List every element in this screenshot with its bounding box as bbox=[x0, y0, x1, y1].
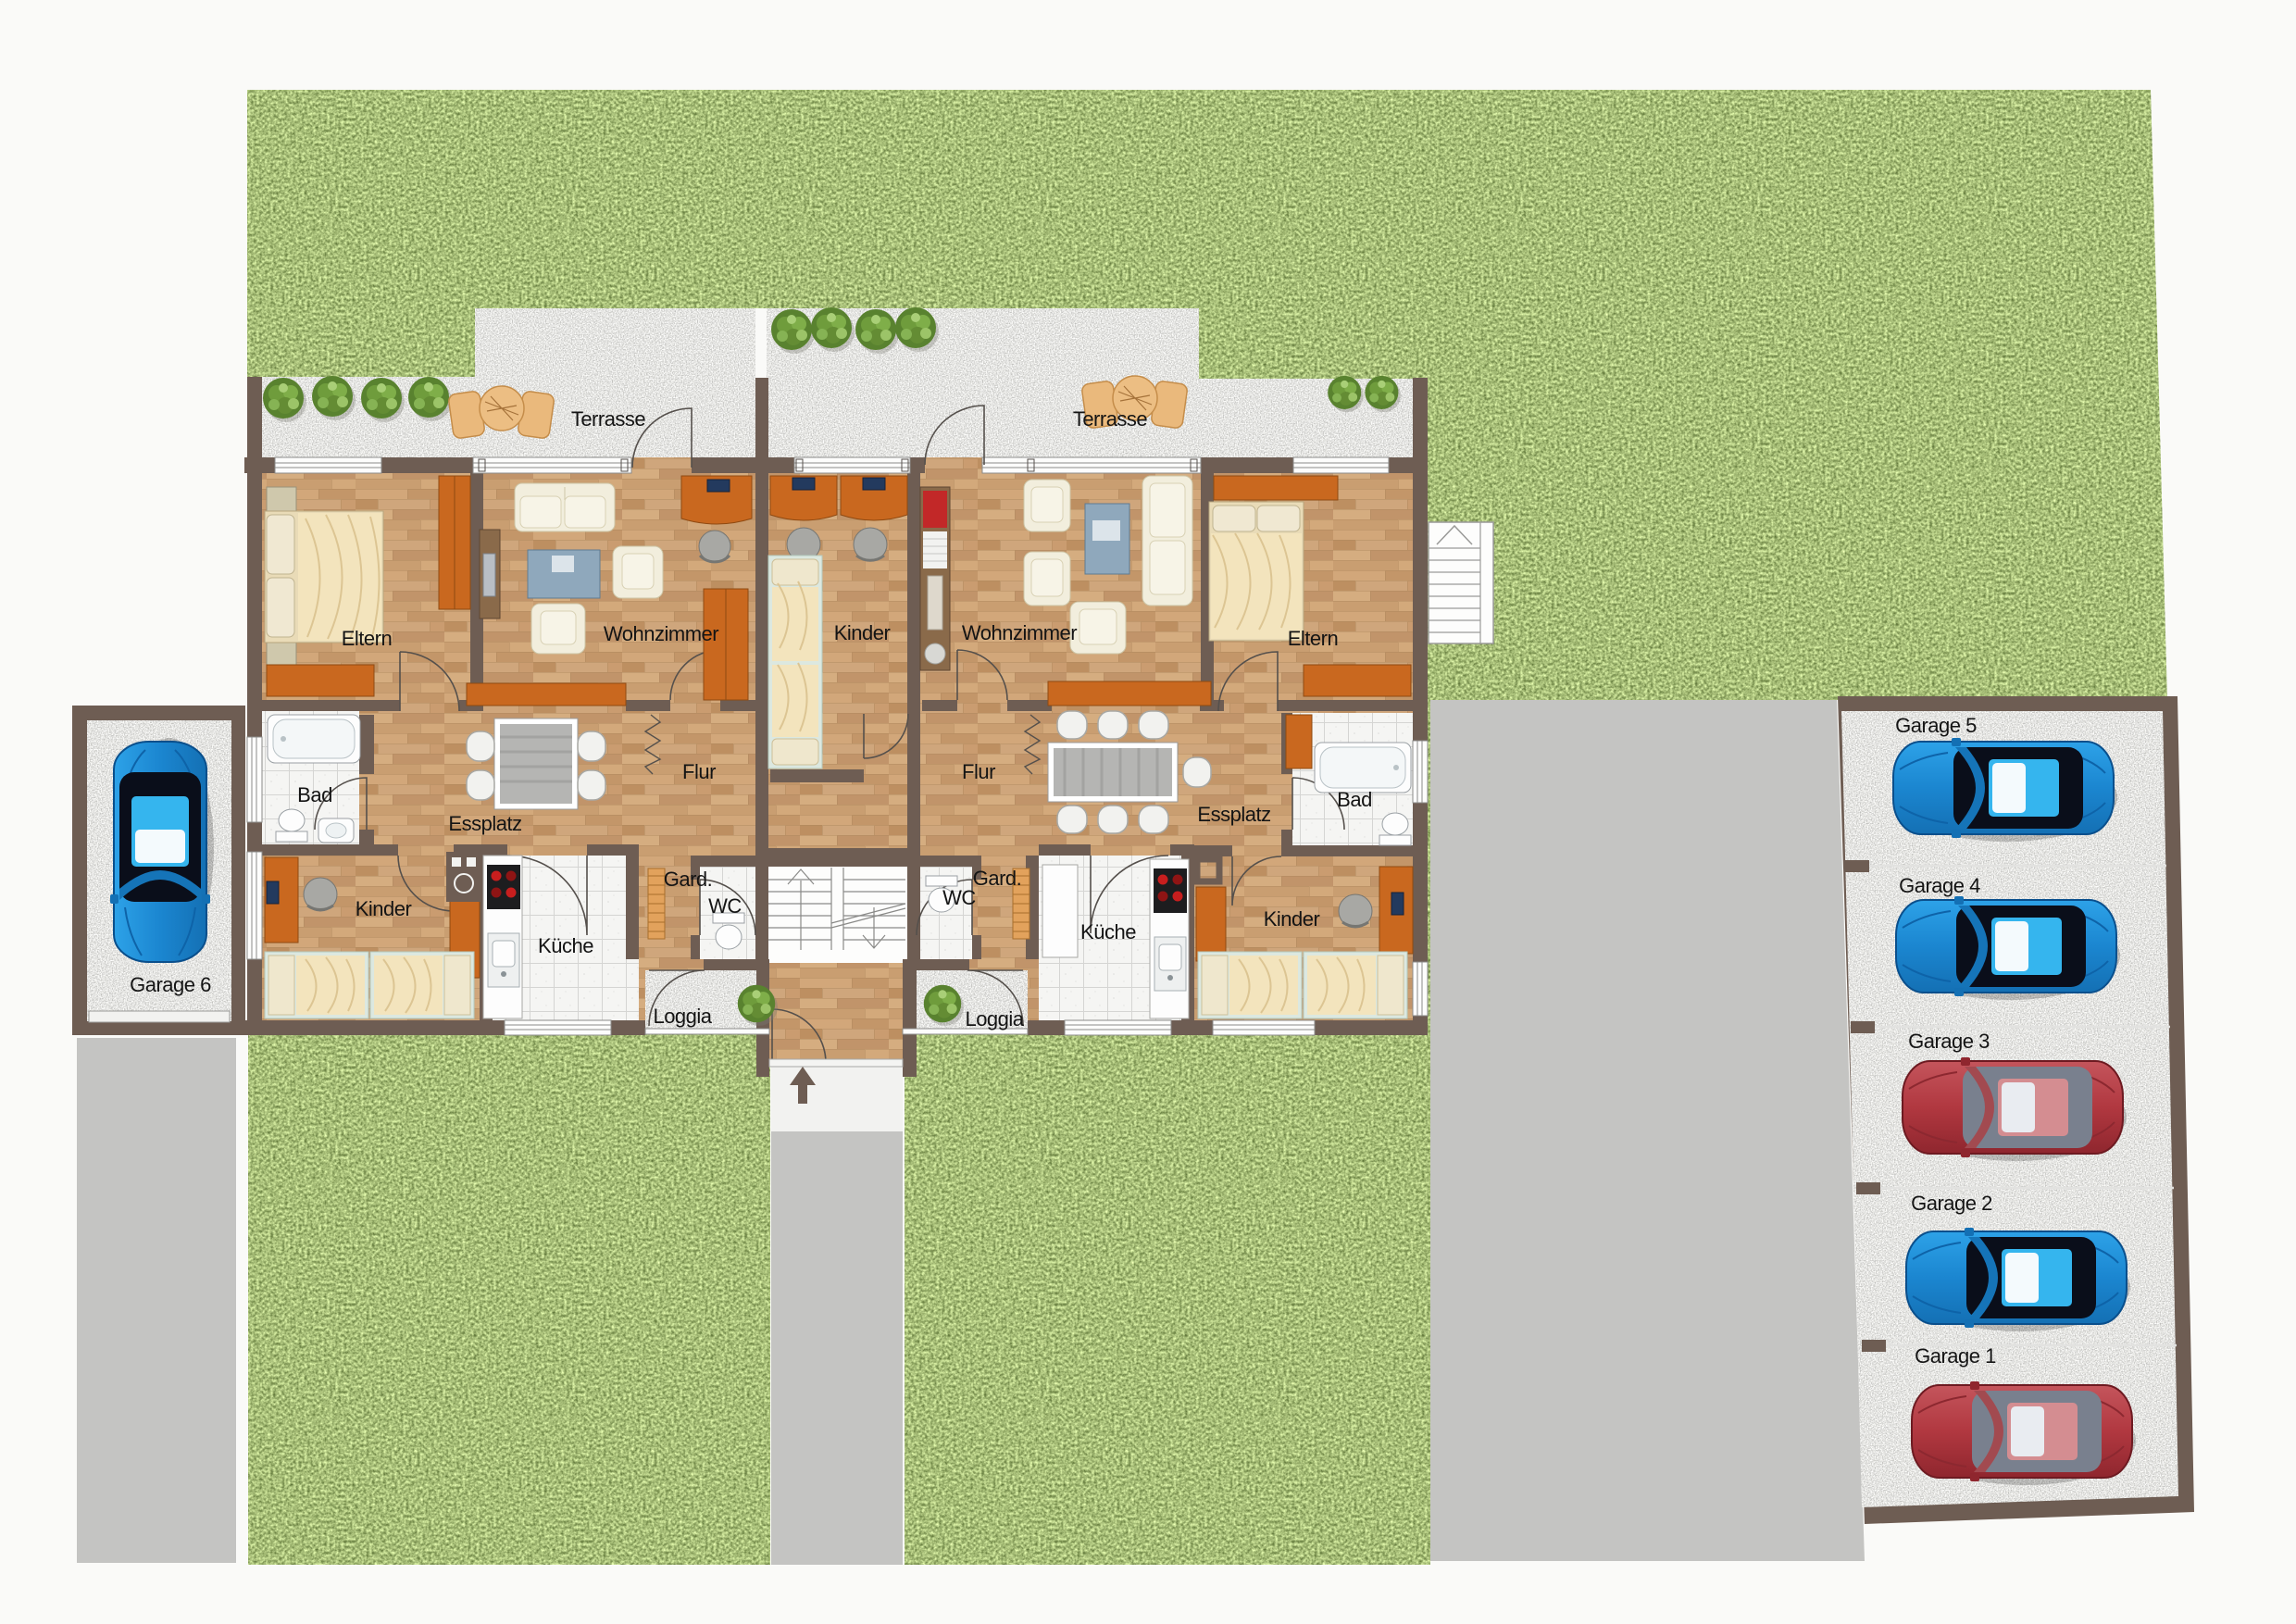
svg-text:Bad: Bad bbox=[297, 783, 332, 806]
svg-text:Eltern: Eltern bbox=[1288, 627, 1338, 650]
svg-text:Küche: Küche bbox=[1080, 920, 1136, 943]
svg-text:Kinder: Kinder bbox=[356, 897, 412, 920]
svg-text:Flur: Flur bbox=[682, 760, 716, 783]
svg-text:Garage 4: Garage 4 bbox=[1899, 874, 1980, 897]
svg-text:Kinder: Kinder bbox=[1264, 907, 1320, 931]
svg-text:Bad: Bad bbox=[1337, 788, 1372, 811]
svg-text:Essplatz: Essplatz bbox=[448, 812, 521, 835]
svg-text:Garage 2: Garage 2 bbox=[1911, 1192, 1992, 1215]
svg-text:Eltern: Eltern bbox=[342, 627, 392, 650]
svg-text:Garage 3: Garage 3 bbox=[1908, 1030, 1990, 1053]
svg-text:Wohnzimmer: Wohnzimmer bbox=[604, 622, 718, 645]
svg-text:WC: WC bbox=[942, 886, 976, 909]
svg-text:Loggia: Loggia bbox=[653, 1005, 712, 1028]
svg-text:Terrasse: Terrasse bbox=[571, 407, 646, 431]
svg-text:WC: WC bbox=[708, 894, 742, 918]
svg-text:Kinder: Kinder bbox=[834, 621, 891, 644]
svg-text:Gard.: Gard. bbox=[664, 868, 713, 891]
svg-text:Küche: Küche bbox=[538, 934, 593, 957]
svg-text:Garage 1: Garage 1 bbox=[1915, 1344, 1996, 1368]
svg-text:Loggia: Loggia bbox=[965, 1007, 1024, 1031]
svg-text:Terrasse: Terrasse bbox=[1073, 407, 1148, 431]
svg-text:Garage 5: Garage 5 bbox=[1895, 714, 1977, 737]
svg-text:Wohnzimmer: Wohnzimmer bbox=[962, 621, 1077, 644]
svg-text:Gard.: Gard. bbox=[973, 867, 1022, 890]
svg-text:Flur: Flur bbox=[962, 760, 995, 783]
svg-text:Garage 6: Garage 6 bbox=[130, 973, 211, 996]
svg-text:Essplatz: Essplatz bbox=[1197, 803, 1270, 826]
